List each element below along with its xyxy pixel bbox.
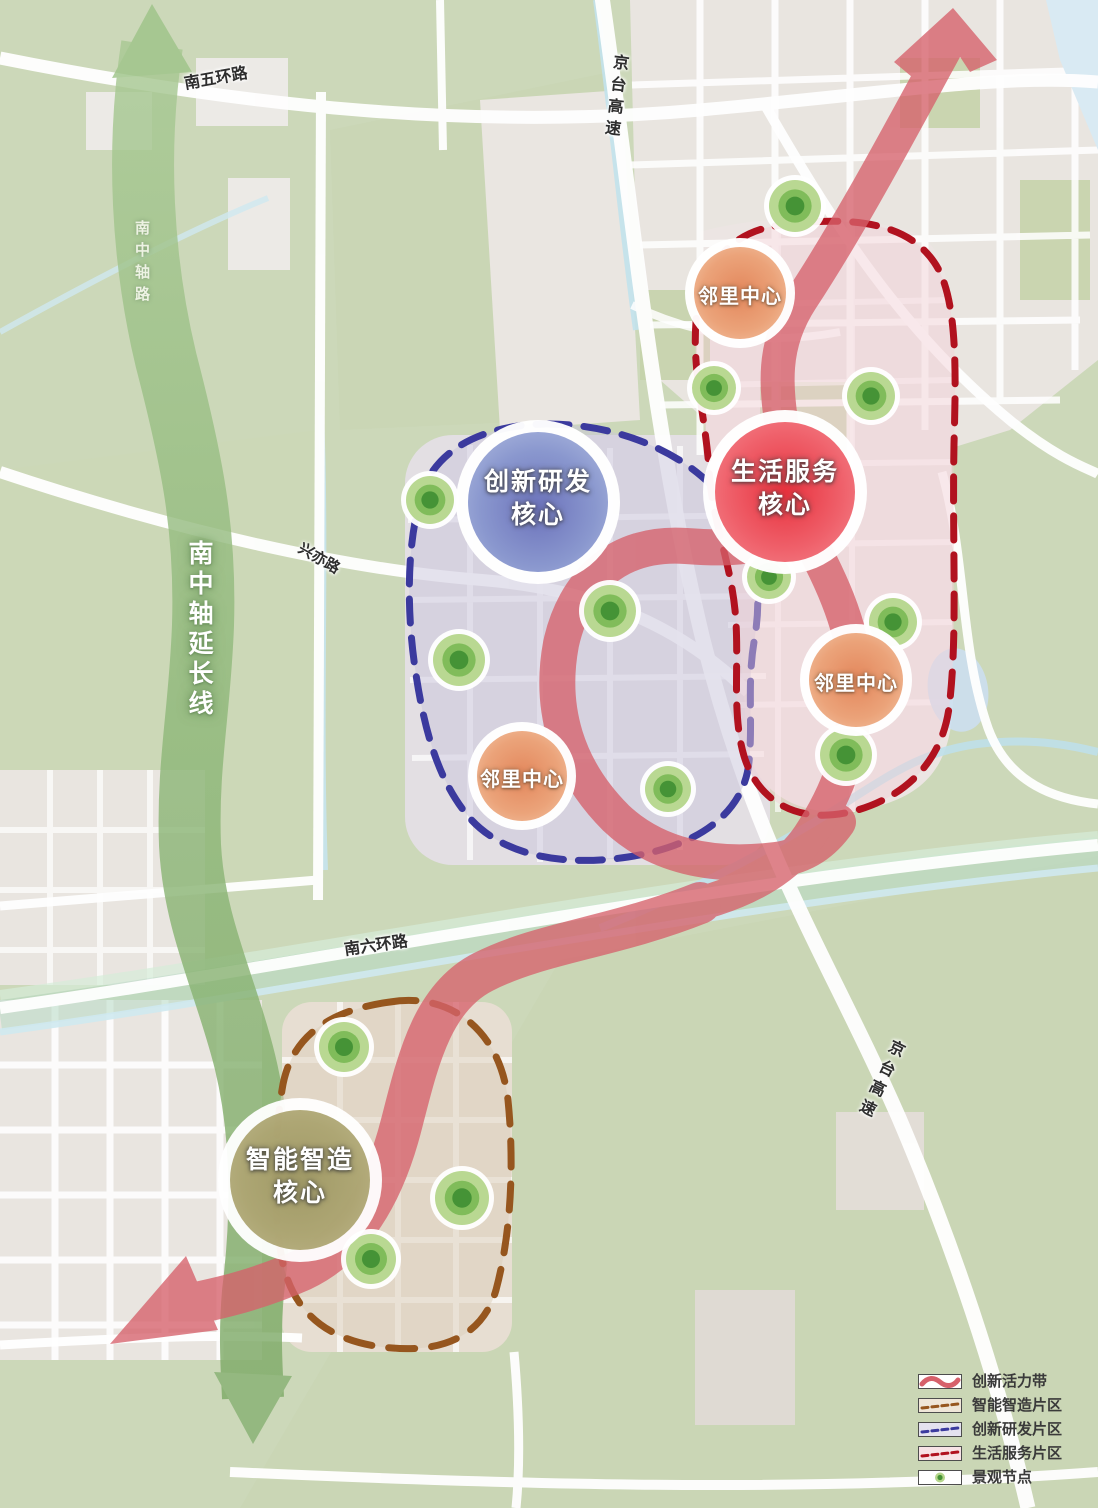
landscape-node	[687, 361, 741, 415]
landscape-node-swatch-icon	[918, 1470, 962, 1485]
neighborhood-center-west	[468, 722, 576, 830]
legend-label-manufacturing-zone: 智能智造片区	[972, 1398, 1062, 1413]
road-north-stub	[440, 0, 443, 150]
smart-manufacturing-core-circle	[218, 1098, 382, 1262]
legend-row-innovation-zone: 创新研发片区	[918, 1422, 1062, 1437]
manufacturing-zone-swatch-icon	[918, 1398, 962, 1413]
landscape-node	[764, 175, 826, 237]
landscape-node	[640, 761, 696, 817]
neighborhood-center-east	[800, 624, 912, 736]
vitality-band-swatch-icon	[918, 1374, 962, 1389]
legend-label-life-service-zone: 生活服务片区	[972, 1446, 1062, 1461]
map-canvas	[0, 0, 1098, 1508]
neighborhood-center-north	[685, 238, 795, 348]
block-nw-2	[228, 178, 290, 270]
landscape-node	[428, 629, 490, 691]
road-west-vertical	[318, 92, 321, 900]
legend-row-manufacturing-zone: 智能智造片区	[918, 1398, 1062, 1413]
legend: 创新活力带 智能智造片区 创新研发片区 生活服务片区 景观节点	[918, 1374, 1062, 1485]
road-south-vertical	[514, 1352, 519, 1508]
life-service-core-circle	[703, 410, 867, 574]
landscape-node	[579, 580, 641, 642]
legend-row-life-service-zone: 生活服务片区	[918, 1446, 1062, 1461]
landscape-node	[401, 471, 459, 529]
landscape-node	[430, 1166, 494, 1230]
planning-map: 南五环路 京台高速 南中轴路 南中轴延长线 兴亦路 南六环路 京台高速 创新研发…	[0, 0, 1098, 1508]
landscape-node	[314, 1017, 374, 1077]
life-service-zone-swatch-icon	[918, 1446, 962, 1461]
building-south-1	[695, 1290, 795, 1425]
landscape-node	[842, 367, 900, 425]
legend-row-landscape-node: 景观节点	[918, 1470, 1062, 1485]
legend-label-innovation-zone: 创新研发片区	[972, 1422, 1062, 1437]
legend-label-landscape-node: 景观节点	[972, 1470, 1032, 1485]
legend-row-vitality-band: 创新活力带	[918, 1374, 1062, 1389]
innovation-rd-core-circle	[456, 420, 620, 584]
innovation-zone-swatch-icon	[918, 1422, 962, 1437]
legend-label-vitality-band: 创新活力带	[972, 1374, 1047, 1389]
